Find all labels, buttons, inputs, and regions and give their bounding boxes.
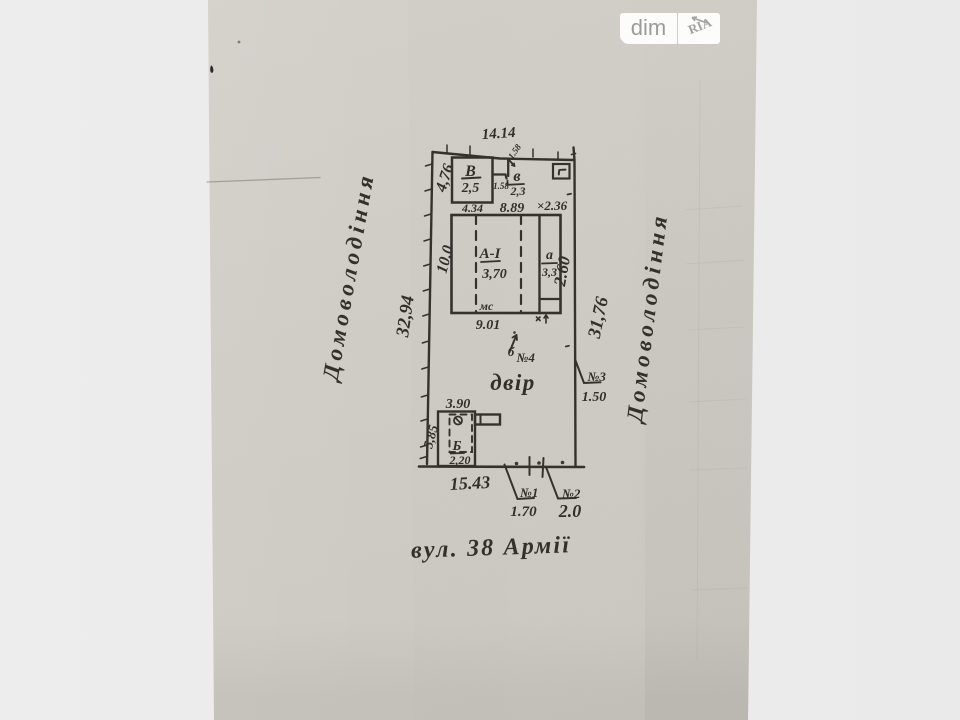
svg-text:№3: №3 [587,369,607,384]
svg-text:3.90: 3.90 [445,397,471,412]
svg-text:А-І: А-І [479,246,502,262]
svg-text:2,3: 2,3 [510,184,526,198]
svg-text:2,5: 2,5 [461,181,480,196]
svg-text:×2.36: ×2.36 [537,198,568,213]
svg-text:2,20: 2,20 [449,453,471,467]
svg-text:4,76: 4,76 [432,162,457,195]
svg-text:б: б [508,344,515,359]
svg-text:вул. 38 Армії: вул. 38 Армії [411,532,572,564]
svg-text:№1: №1 [519,485,538,500]
svg-text:10.0: 10.0 [434,244,458,275]
svg-text:мс: мс [479,299,494,313]
svg-text:32,94: 32,94 [393,294,419,339]
svg-text:двір: двір [490,370,536,395]
svg-text:№4: №4 [516,350,536,365]
svg-text:15.43: 15.43 [449,472,490,494]
svg-text:1.50: 1.50 [582,390,607,405]
svg-text:1.70: 1.70 [510,504,537,520]
svg-text:14.14: 14.14 [481,125,516,143]
svg-text:1.58: 1.58 [493,181,509,191]
svg-text:Домоволодіння: Домоволодіння [622,211,673,426]
svg-text:2.0: 2.0 [558,501,582,521]
svg-text:№2: №2 [561,486,581,501]
svg-text:31,76: 31,76 [585,294,614,341]
svg-text:Домоволодіння: Домоволодіння [318,170,380,384]
svg-text:в: в [513,168,520,185]
svg-text:9.01: 9.01 [476,318,501,333]
svg-text:4.34: 4.34 [461,201,483,215]
svg-text:а: а [546,248,553,263]
svg-text:2.60: 2.60 [550,254,574,288]
svg-text:Б: Б [452,439,462,454]
svg-text:3,70: 3,70 [481,267,507,282]
